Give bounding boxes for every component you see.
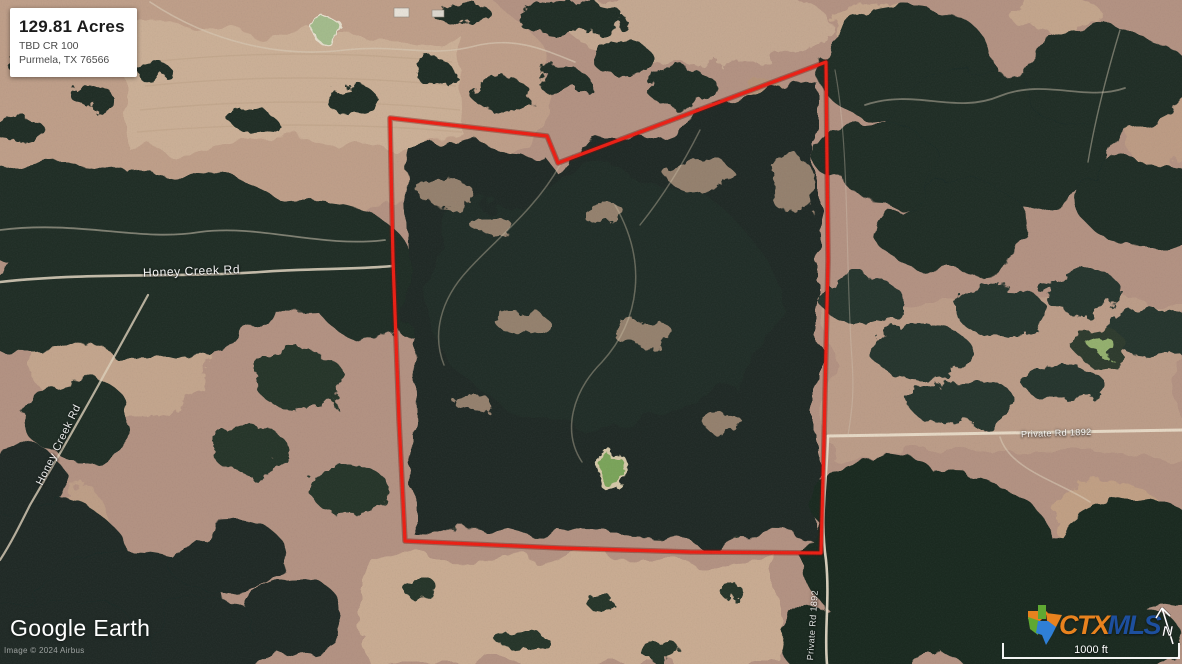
scale-bar: 1000 ft bbox=[1002, 643, 1180, 659]
satellite-imagery[interactable] bbox=[0, 0, 1182, 664]
grain-highlight-overlay bbox=[0, 0, 1182, 664]
google-earth-viewport[interactable]: 129.81 Acres TBD CR 100 Purmela, TX 7656… bbox=[0, 0, 1182, 664]
listing-info-card: 129.81 Acres TBD CR 100 Purmela, TX 7656… bbox=[10, 8, 137, 77]
scale-bar-label: 1000 ft bbox=[1074, 644, 1108, 656]
ctx-logo-text: CTX bbox=[1059, 612, 1109, 639]
imagery-credit: Image © 2024 Airbus bbox=[4, 646, 85, 655]
address-line2: Purmela, TX 76566 bbox=[19, 54, 125, 68]
ctx-mls-logo: CTX MLS bbox=[1026, 605, 1160, 645]
address-line1: TBD CR 100 bbox=[19, 40, 125, 54]
svg-text:N: N bbox=[1162, 623, 1174, 640]
acreage-title: 129.81 Acres bbox=[19, 17, 125, 37]
google-earth-logo: Google Earth bbox=[10, 615, 150, 642]
